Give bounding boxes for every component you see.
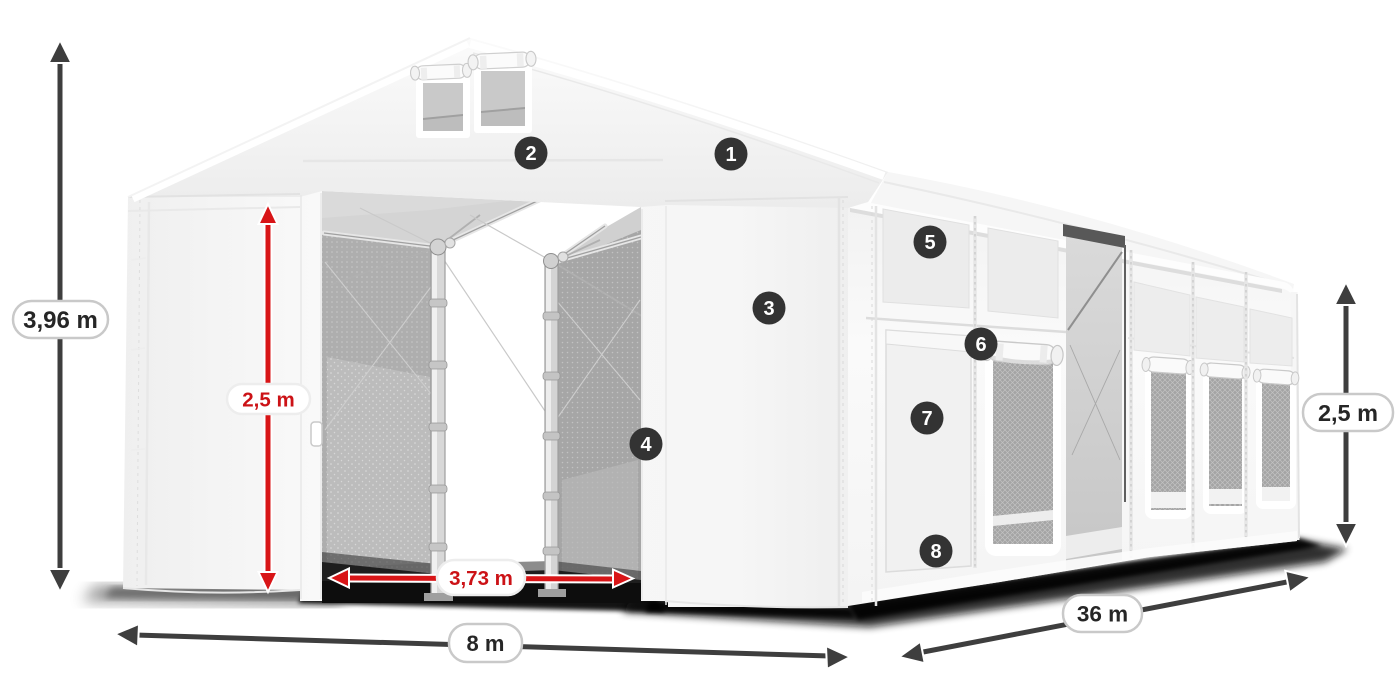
svg-text:4: 4	[640, 434, 652, 456]
svg-text:6: 6	[975, 334, 986, 356]
svg-text:2,5 m: 2,5 m	[1318, 400, 1378, 426]
svg-text:2: 2	[525, 143, 536, 165]
svg-text:7: 7	[921, 408, 932, 430]
svg-text:8: 8	[930, 541, 941, 563]
svg-text:5: 5	[924, 232, 935, 254]
svg-text:8 m: 8 m	[467, 631, 505, 656]
svg-text:3: 3	[763, 298, 774, 320]
svg-text:3,96 m: 3,96 m	[23, 307, 98, 334]
svg-text:36 m: 36 m	[1077, 602, 1128, 627]
svg-text:2,5 m: 2,5 m	[242, 388, 294, 411]
svg-text:1: 1	[725, 144, 736, 166]
svg-text:3,73 m: 3,73 m	[449, 567, 513, 590]
